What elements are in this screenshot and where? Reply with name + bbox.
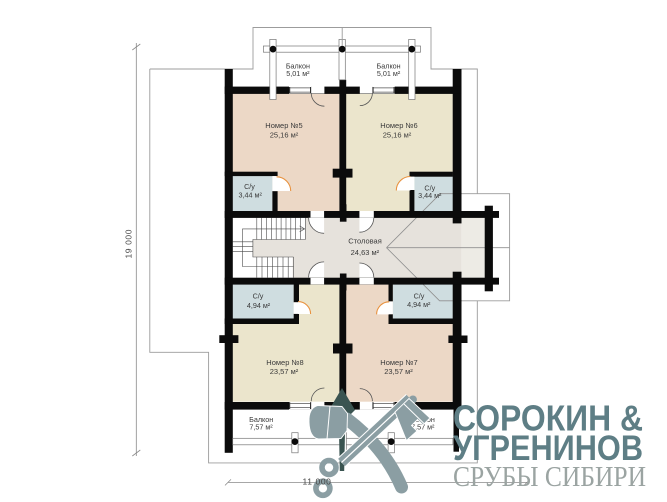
svg-text:С/у: С/у <box>253 292 264 301</box>
svg-text:Номер №8: Номер №8 <box>266 358 303 367</box>
svg-text:Столовая: Столовая <box>348 236 382 245</box>
svg-text:23,57 м²: 23,57 м² <box>270 367 299 376</box>
svg-text:Номер №5: Номер №5 <box>265 121 302 130</box>
svg-text:23,57 м²: 23,57 м² <box>384 367 413 376</box>
svg-text:25,16 м²: 25,16 м² <box>270 131 299 140</box>
svg-text:11 000: 11 000 <box>303 477 332 487</box>
svg-text:24,63 м²: 24,63 м² <box>351 248 380 257</box>
svg-text:5,01 м²: 5,01 м² <box>286 69 310 78</box>
svg-text:4,94 м²: 4,94 м² <box>407 300 431 309</box>
svg-text:СРУБЫ СИБИРИ: СРУБЫ СИБИРИ <box>453 462 646 493</box>
svg-text:19 000: 19 000 <box>124 229 134 259</box>
svg-text:Номер №6: Номер №6 <box>380 121 417 130</box>
svg-text:4,94 м²: 4,94 м² <box>247 301 271 310</box>
svg-text:3,44 м²: 3,44 м² <box>418 191 442 200</box>
svg-text:25,16 м²: 25,16 м² <box>383 131 412 140</box>
svg-text:5,01 м²: 5,01 м² <box>377 69 401 78</box>
svg-text:7,57 м²: 7,57 м² <box>249 423 273 432</box>
svg-text:Номер №7: Номер №7 <box>380 358 417 367</box>
svg-text:3,44 м²: 3,44 м² <box>239 190 263 199</box>
